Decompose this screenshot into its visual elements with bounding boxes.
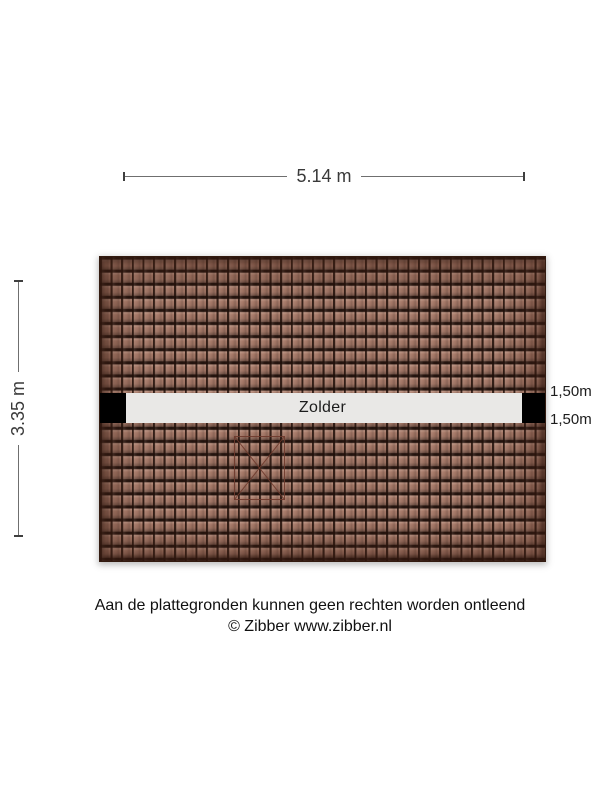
dimension-width: 5.14 m (123, 165, 525, 187)
skylight-cross-icon (234, 436, 285, 500)
dimension-height: 3.35 m (9, 280, 27, 537)
dimension-line-segment (361, 176, 523, 177)
dimension-line-segment (18, 282, 19, 372)
headroom-label-top: 1,50m (550, 384, 592, 400)
dimension-tick-bottom (14, 535, 23, 537)
dimension-line-segment (125, 176, 287, 177)
floorplan-canvas: 5.14 m 3.35 m Zolder 1,50m 1,50m Aan (0, 0, 600, 800)
dimension-tick-right (523, 172, 525, 181)
dimension-height-label: 3.35 m (8, 372, 29, 445)
roof-plan: Zolder (99, 256, 546, 562)
wall-block-right (522, 393, 545, 423)
room-label: Zolder (299, 399, 346, 417)
headroom-label-bottom: 1,50m (550, 412, 592, 428)
footer: Aan de plattegronden kunnen geen rechten… (0, 595, 600, 637)
wall-block-left (100, 393, 126, 423)
disclaimer-text: Aan de plattegronden kunnen geen rechten… (20, 595, 600, 616)
dimension-line-segment (18, 445, 19, 535)
attic-floor-strip: Zolder (100, 393, 545, 423)
copyright-text: © Zibber www.zibber.nl (20, 616, 600, 637)
dimension-width-label: 5.14 m (287, 165, 360, 187)
skylight (234, 436, 285, 500)
